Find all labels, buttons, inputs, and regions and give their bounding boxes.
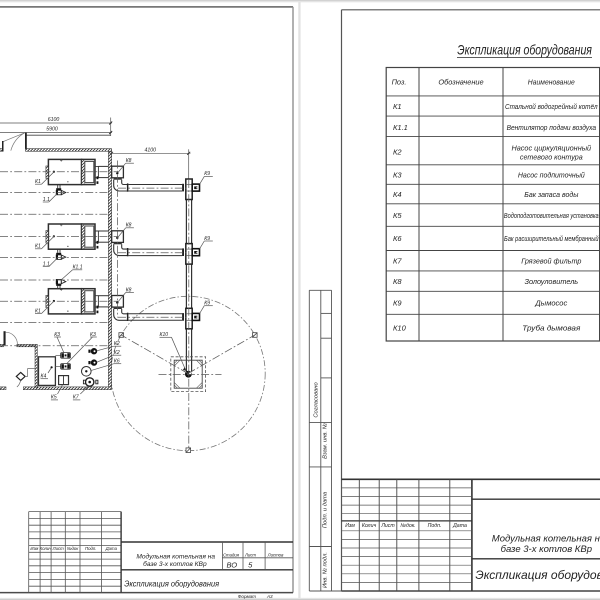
svg-text:Труба дымовая: Труба дымовая [522, 324, 581, 333]
svg-text:Поз.: Поз. [392, 78, 407, 87]
svg-text:Экспликация оборудования: Экспликация оборудования [457, 42, 592, 58]
svg-text:К7: К7 [393, 257, 402, 266]
svg-text:ВО: ВО [226, 561, 237, 570]
svg-text:4100: 4100 [145, 147, 157, 153]
svg-text:Насос подпиточный: Насос подпиточный [518, 170, 585, 179]
svg-text:Лист: Лист [380, 523, 395, 529]
svg-text:Дата: Дата [105, 546, 118, 551]
svg-text:Стальной водогрейный котёл: Стальной водогрейный котёл [505, 103, 598, 112]
svg-text:Экспликация оборудования: Экспликация оборудования [475, 568, 600, 582]
svg-text:6100: 6100 [48, 117, 60, 123]
svg-text:Бак расширительный мембранный: Бак расширительный мембранный [504, 234, 599, 243]
svg-text:Модульная котельная на: Модульная котельная на [492, 534, 600, 545]
svg-text:Согласовано: Согласовано [313, 382, 319, 418]
svg-text:Дата: Дата [452, 523, 467, 529]
svg-text:Насос циркуляционный: Насос циркуляционный [511, 143, 591, 152]
svg-text:Подп.: Подп. [428, 523, 442, 529]
svg-text:Водоподготовительная установка: Водоподготовительная установка [504, 211, 599, 220]
svg-text:базе 3-х котлов КВр: базе 3-х котлов КВр [501, 544, 592, 555]
svg-text:Лист: Лист [244, 552, 256, 557]
svg-text:Лист: Лист [52, 546, 64, 551]
svg-text:Вентилятор подачи воздуха: Вентилятор подачи воздуха [507, 124, 597, 133]
svg-text:Золоуловитель: Золоуловитель [524, 277, 578, 286]
svg-text:Подп. и дата: Подп. и дата [323, 491, 329, 528]
svg-text:Модульная котельная на: Модульная котельная на [136, 553, 215, 561]
svg-text:Инв. № подл.: Инв. № подл. [323, 552, 329, 588]
svg-text:К10: К10 [393, 324, 407, 333]
svg-text:К3: К3 [393, 171, 402, 180]
svg-text:Подп.: Подп. [85, 546, 96, 551]
svg-text:Изм: Изм [345, 523, 355, 529]
svg-text:К1: К1 [393, 102, 402, 111]
svg-text:Листов: Листов [267, 552, 284, 557]
svg-text:Грязевой фильтр: Грязевой фильтр [521, 256, 581, 265]
svg-text:К2: К2 [393, 148, 402, 157]
svg-text:№док: №док [67, 546, 79, 551]
svg-text:Дымосос: Дымосос [534, 298, 567, 307]
svg-text:Наименование: Наименование [528, 78, 575, 86]
svg-text:базе 3-х котлов КВр: базе 3-х котлов КВр [143, 560, 207, 568]
svg-text:К9: К9 [393, 299, 402, 308]
svg-text:Изм: Изм [30, 546, 38, 551]
svg-text:К6: К6 [393, 234, 402, 243]
svg-text:Формат: Формат [238, 594, 256, 599]
svg-text:Колич: Колич [40, 546, 53, 551]
svg-text:Обозначение: Обозначение [438, 78, 483, 87]
svg-text:Колич: Колич [362, 523, 377, 529]
svg-text:сетевого контура: сетевого контура [520, 152, 583, 161]
svg-text:№док.: №док. [400, 523, 415, 529]
svg-text:К5: К5 [393, 211, 402, 220]
svg-text:5900: 5900 [46, 127, 58, 133]
svg-text:А3: А3 [266, 594, 273, 599]
svg-text:Экспликация оборудования: Экспликация оборудования [124, 579, 220, 589]
svg-text:К8: К8 [393, 277, 402, 286]
svg-text:Бак запаса воды: Бак запаса воды [524, 190, 579, 199]
svg-text:Стадия: Стадия [223, 552, 240, 557]
svg-text:К1.1: К1.1 [393, 123, 408, 132]
svg-text:К4: К4 [393, 190, 402, 199]
svg-text:Взам. инв. №: Взам. инв. № [323, 423, 329, 459]
